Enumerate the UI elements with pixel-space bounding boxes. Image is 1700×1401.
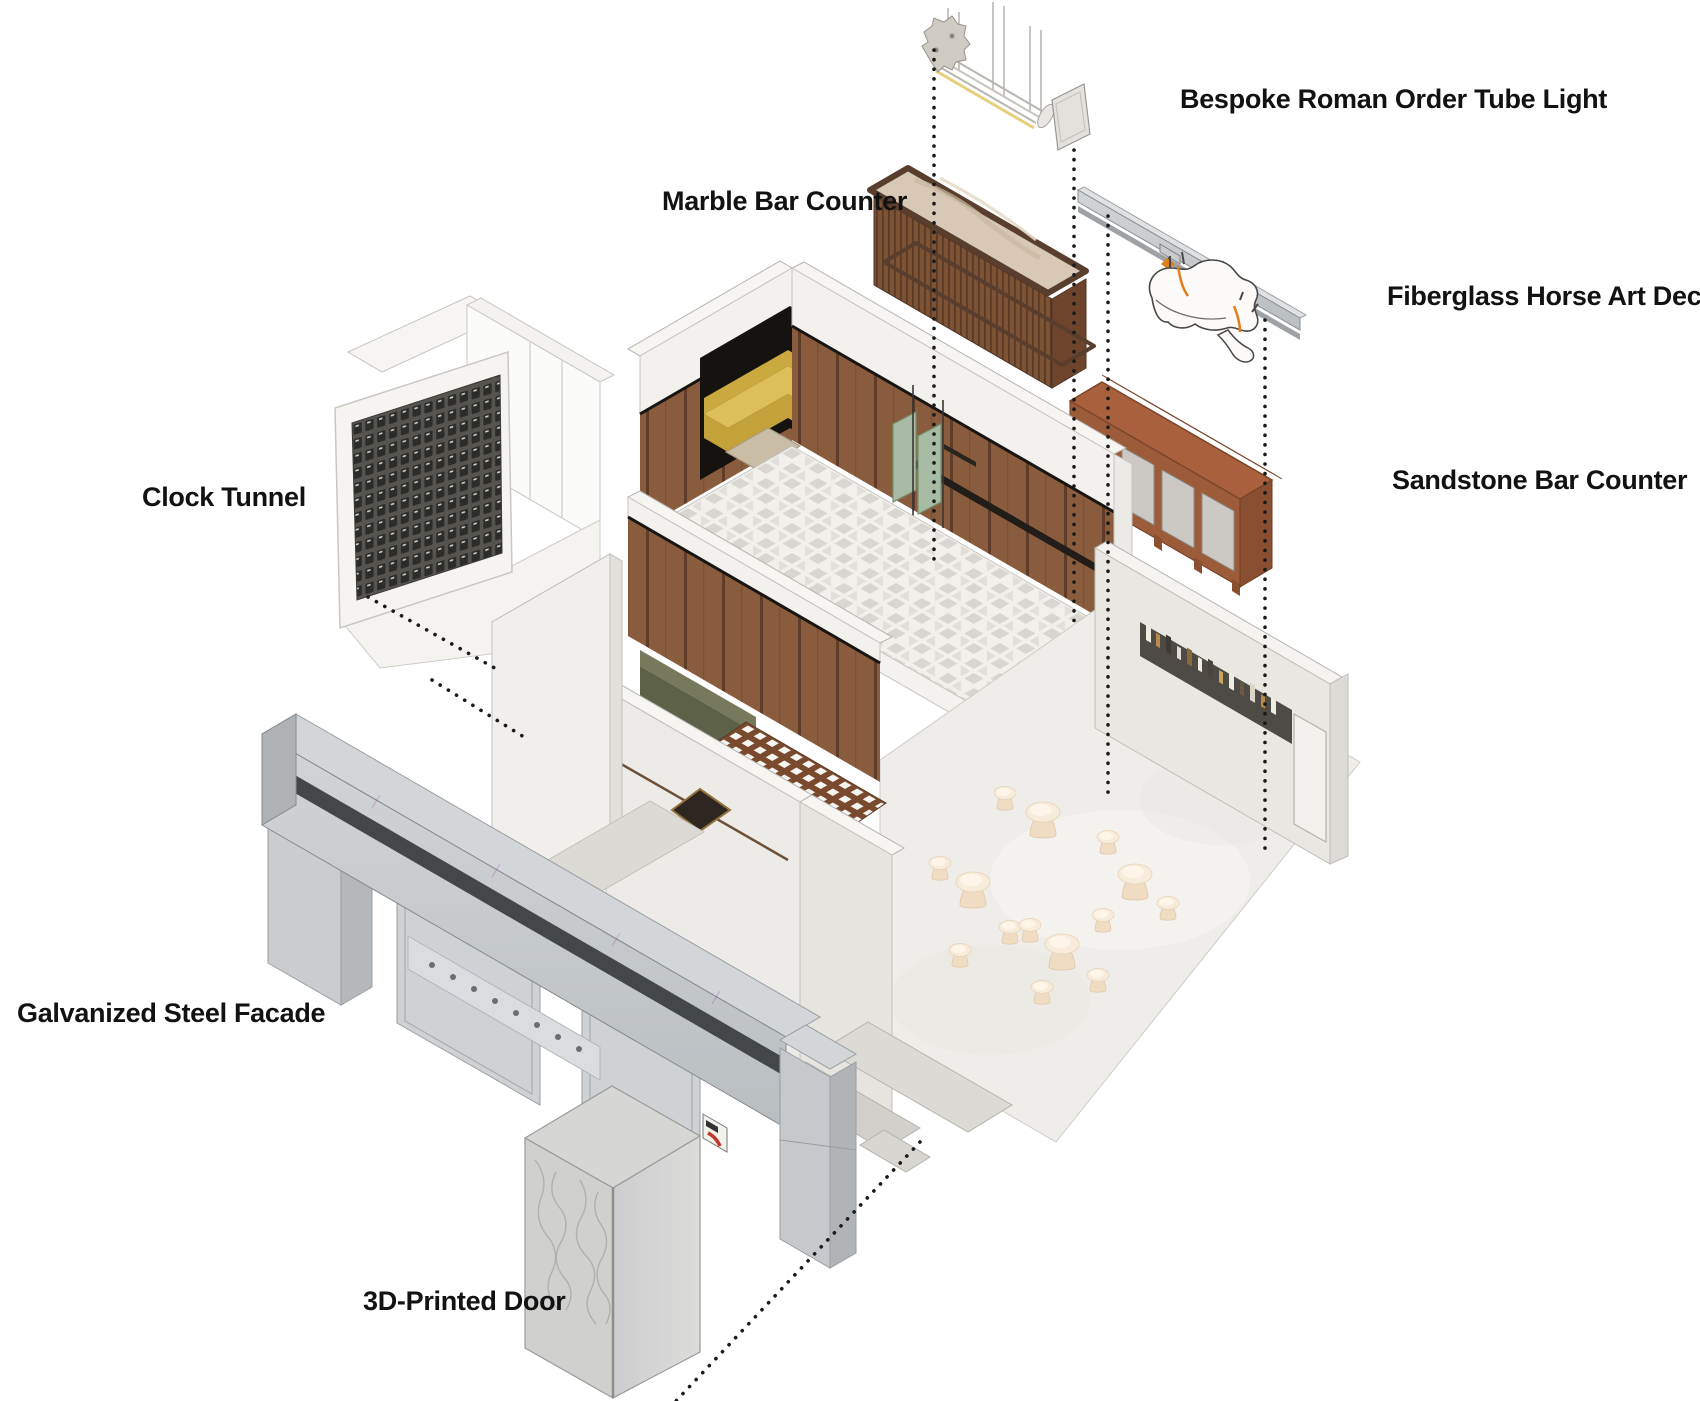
- label-marble-counter: Marble Bar Counter: [662, 186, 908, 216]
- facade-pillar: [780, 1048, 830, 1268]
- label-clock-tunnel: Clock Tunnel: [142, 482, 306, 512]
- printed-door: [525, 1086, 700, 1398]
- label-horse-decor: Fiberglass Horse Art Decor: [1387, 281, 1700, 311]
- lit-tube: [936, 71, 1034, 128]
- label-printed-door: 3D-Printed Door: [363, 1286, 566, 1316]
- fiberglass-horse: [1149, 244, 1258, 362]
- diagram-canvas: Bespoke Roman Order Tube Light Marble Ba…: [0, 0, 1700, 1401]
- horse-head: [1218, 330, 1254, 362]
- label-steel-facade: Galvanized Steel Facade: [17, 998, 326, 1028]
- exploded-axonometric-diagram: { "diagram": { "type": "exploded-axonome…: [0, 0, 1700, 1401]
- label-tube-light: Bespoke Roman Order Tube Light: [1180, 84, 1607, 114]
- label-sandstone-counter: Sandstone Bar Counter: [1392, 465, 1688, 495]
- tube-light: [922, 2, 1090, 150]
- wall-door-opening: [1294, 714, 1326, 842]
- roman-capital: [922, 16, 970, 72]
- logo-badge: [703, 1114, 727, 1152]
